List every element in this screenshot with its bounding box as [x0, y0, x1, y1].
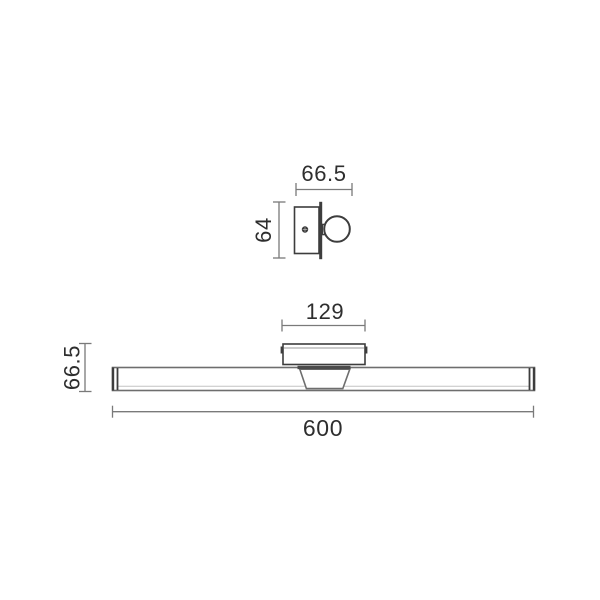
bracket-screw-left	[281, 347, 284, 354]
side-view: 66.5 64	[251, 161, 352, 259]
technical-drawing: 66.5 64	[0, 0, 600, 600]
front-view-length-dimension: 600	[113, 406, 534, 441]
mounting-bracket	[283, 344, 365, 365]
front-view-bracket-dimension: 129	[282, 299, 365, 332]
side-view-height-dimension: 64	[251, 202, 286, 258]
bracket-width-dimension-label: 129	[306, 299, 345, 324]
length-dimension-label: 600	[303, 415, 343, 441]
tube-cross-section	[324, 216, 350, 242]
side-view-depth-dimension: 66.5	[296, 161, 352, 196]
bracket-screw-right	[365, 347, 368, 354]
base-plate	[298, 366, 351, 369]
front-view-height-dimension: 66.5	[60, 344, 92, 392]
front-height-dimension-label: 66.5	[60, 345, 85, 390]
side-depth-dimension-label: 66.5	[301, 161, 346, 186]
side-height-dimension-label: 64	[251, 217, 276, 243]
mounting-stem	[300, 369, 350, 388]
screw-icon	[302, 226, 308, 232]
front-view: 129 66.5	[60, 299, 535, 441]
drawing-canvas: 66.5 64	[0, 0, 600, 600]
